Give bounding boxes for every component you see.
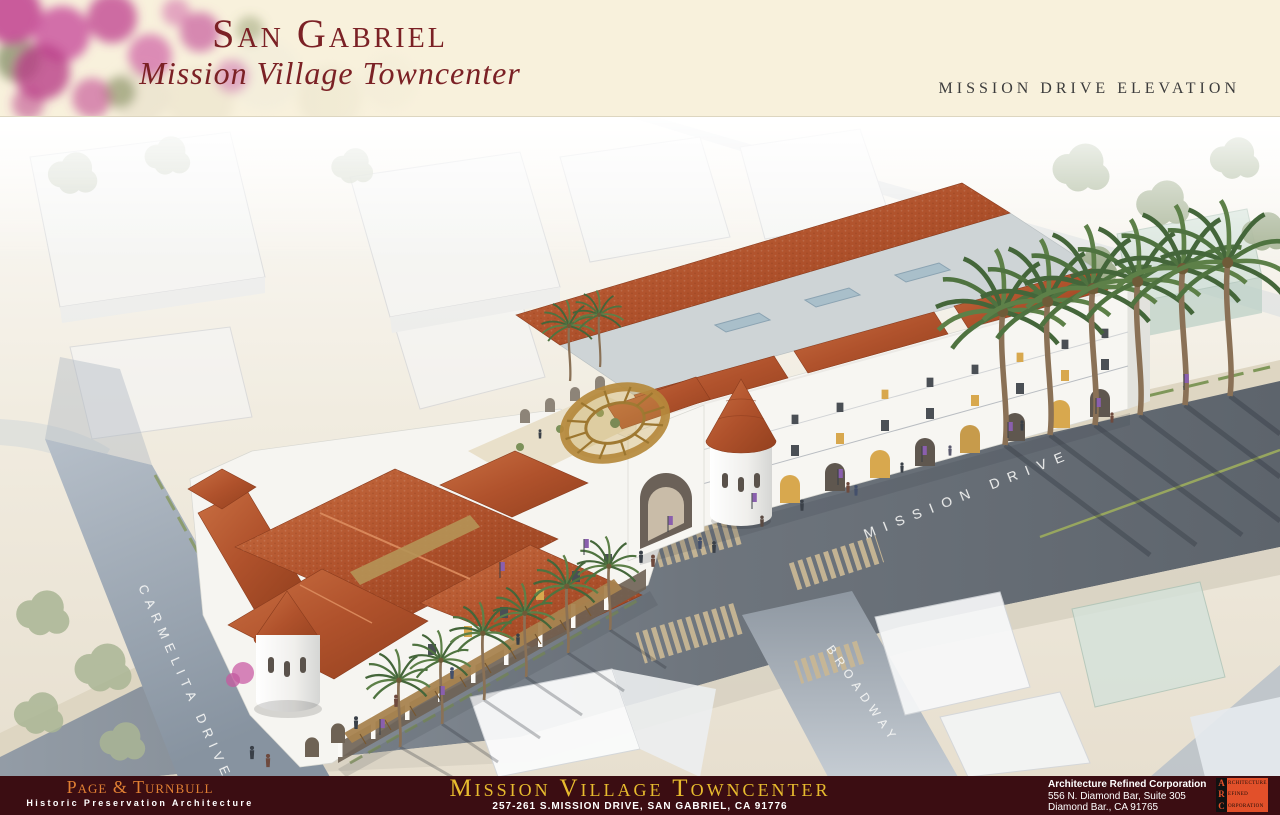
- footer-credits-bar: Page & Turnbull Historic Preservation Ar…: [0, 776, 1280, 815]
- project-title-city: San Gabriel: [120, 14, 540, 54]
- architect-credit-block: Page & Turnbull Historic Preservation Ar…: [0, 778, 280, 810]
- header: San Gabriel Mission Village Towncenter M…: [0, 0, 1280, 116]
- developer-address-line1: 556 N. Diamond Bar, Suite 305: [1048, 791, 1206, 803]
- logo-word-architecture: rchitecture: [1227, 778, 1268, 789]
- elevation-label: MISSION DRIVE ELEVATION: [939, 80, 1240, 98]
- logo-row: A rchitecture: [1216, 778, 1268, 789]
- project-title-name: Mission Village Towncenter: [120, 54, 540, 92]
- architect-firm-name: Page & Turnbull: [0, 778, 280, 797]
- presentation-board: San Gabriel Mission Village Towncenter M…: [0, 0, 1280, 815]
- logo-row: R efined: [1216, 789, 1268, 800]
- logo-initial-r: R: [1216, 789, 1227, 800]
- logo-initial-a: A: [1216, 778, 1227, 789]
- developer-credit-block: Architecture Refined Corporation 556 N. …: [1048, 779, 1206, 814]
- arc-corporation-logo: A rchitecture R efined C orporation: [1216, 778, 1268, 812]
- logo-initial-c: C: [1216, 801, 1227, 812]
- logo-row: C orporation: [1216, 801, 1268, 812]
- aerial-rendering: CARMELITA DRIVE MISSION DRIVE BROADWAY: [0, 116, 1280, 777]
- project-credit-block: Mission Village Towncenter 257-261 S.MIS…: [320, 777, 960, 813]
- developer-name: Architecture Refined Corporation: [1048, 779, 1206, 791]
- developer-address-line2: Diamond Bar., CA 91765: [1048, 802, 1206, 814]
- logo-word-corporation: orporation: [1227, 801, 1268, 812]
- architect-tagline: Historic Preservation Architecture: [0, 797, 280, 810]
- project-title-block: San Gabriel Mission Village Towncenter: [120, 14, 540, 92]
- footer-project-address: 257-261 S.MISSION DRIVE, SAN GABRIEL, CA…: [320, 801, 960, 813]
- logo-word-refined: efined: [1227, 789, 1268, 800]
- atmospheric-wash: [0, 117, 1280, 267]
- footer-project-name: Mission Village Towncenter: [320, 777, 960, 801]
